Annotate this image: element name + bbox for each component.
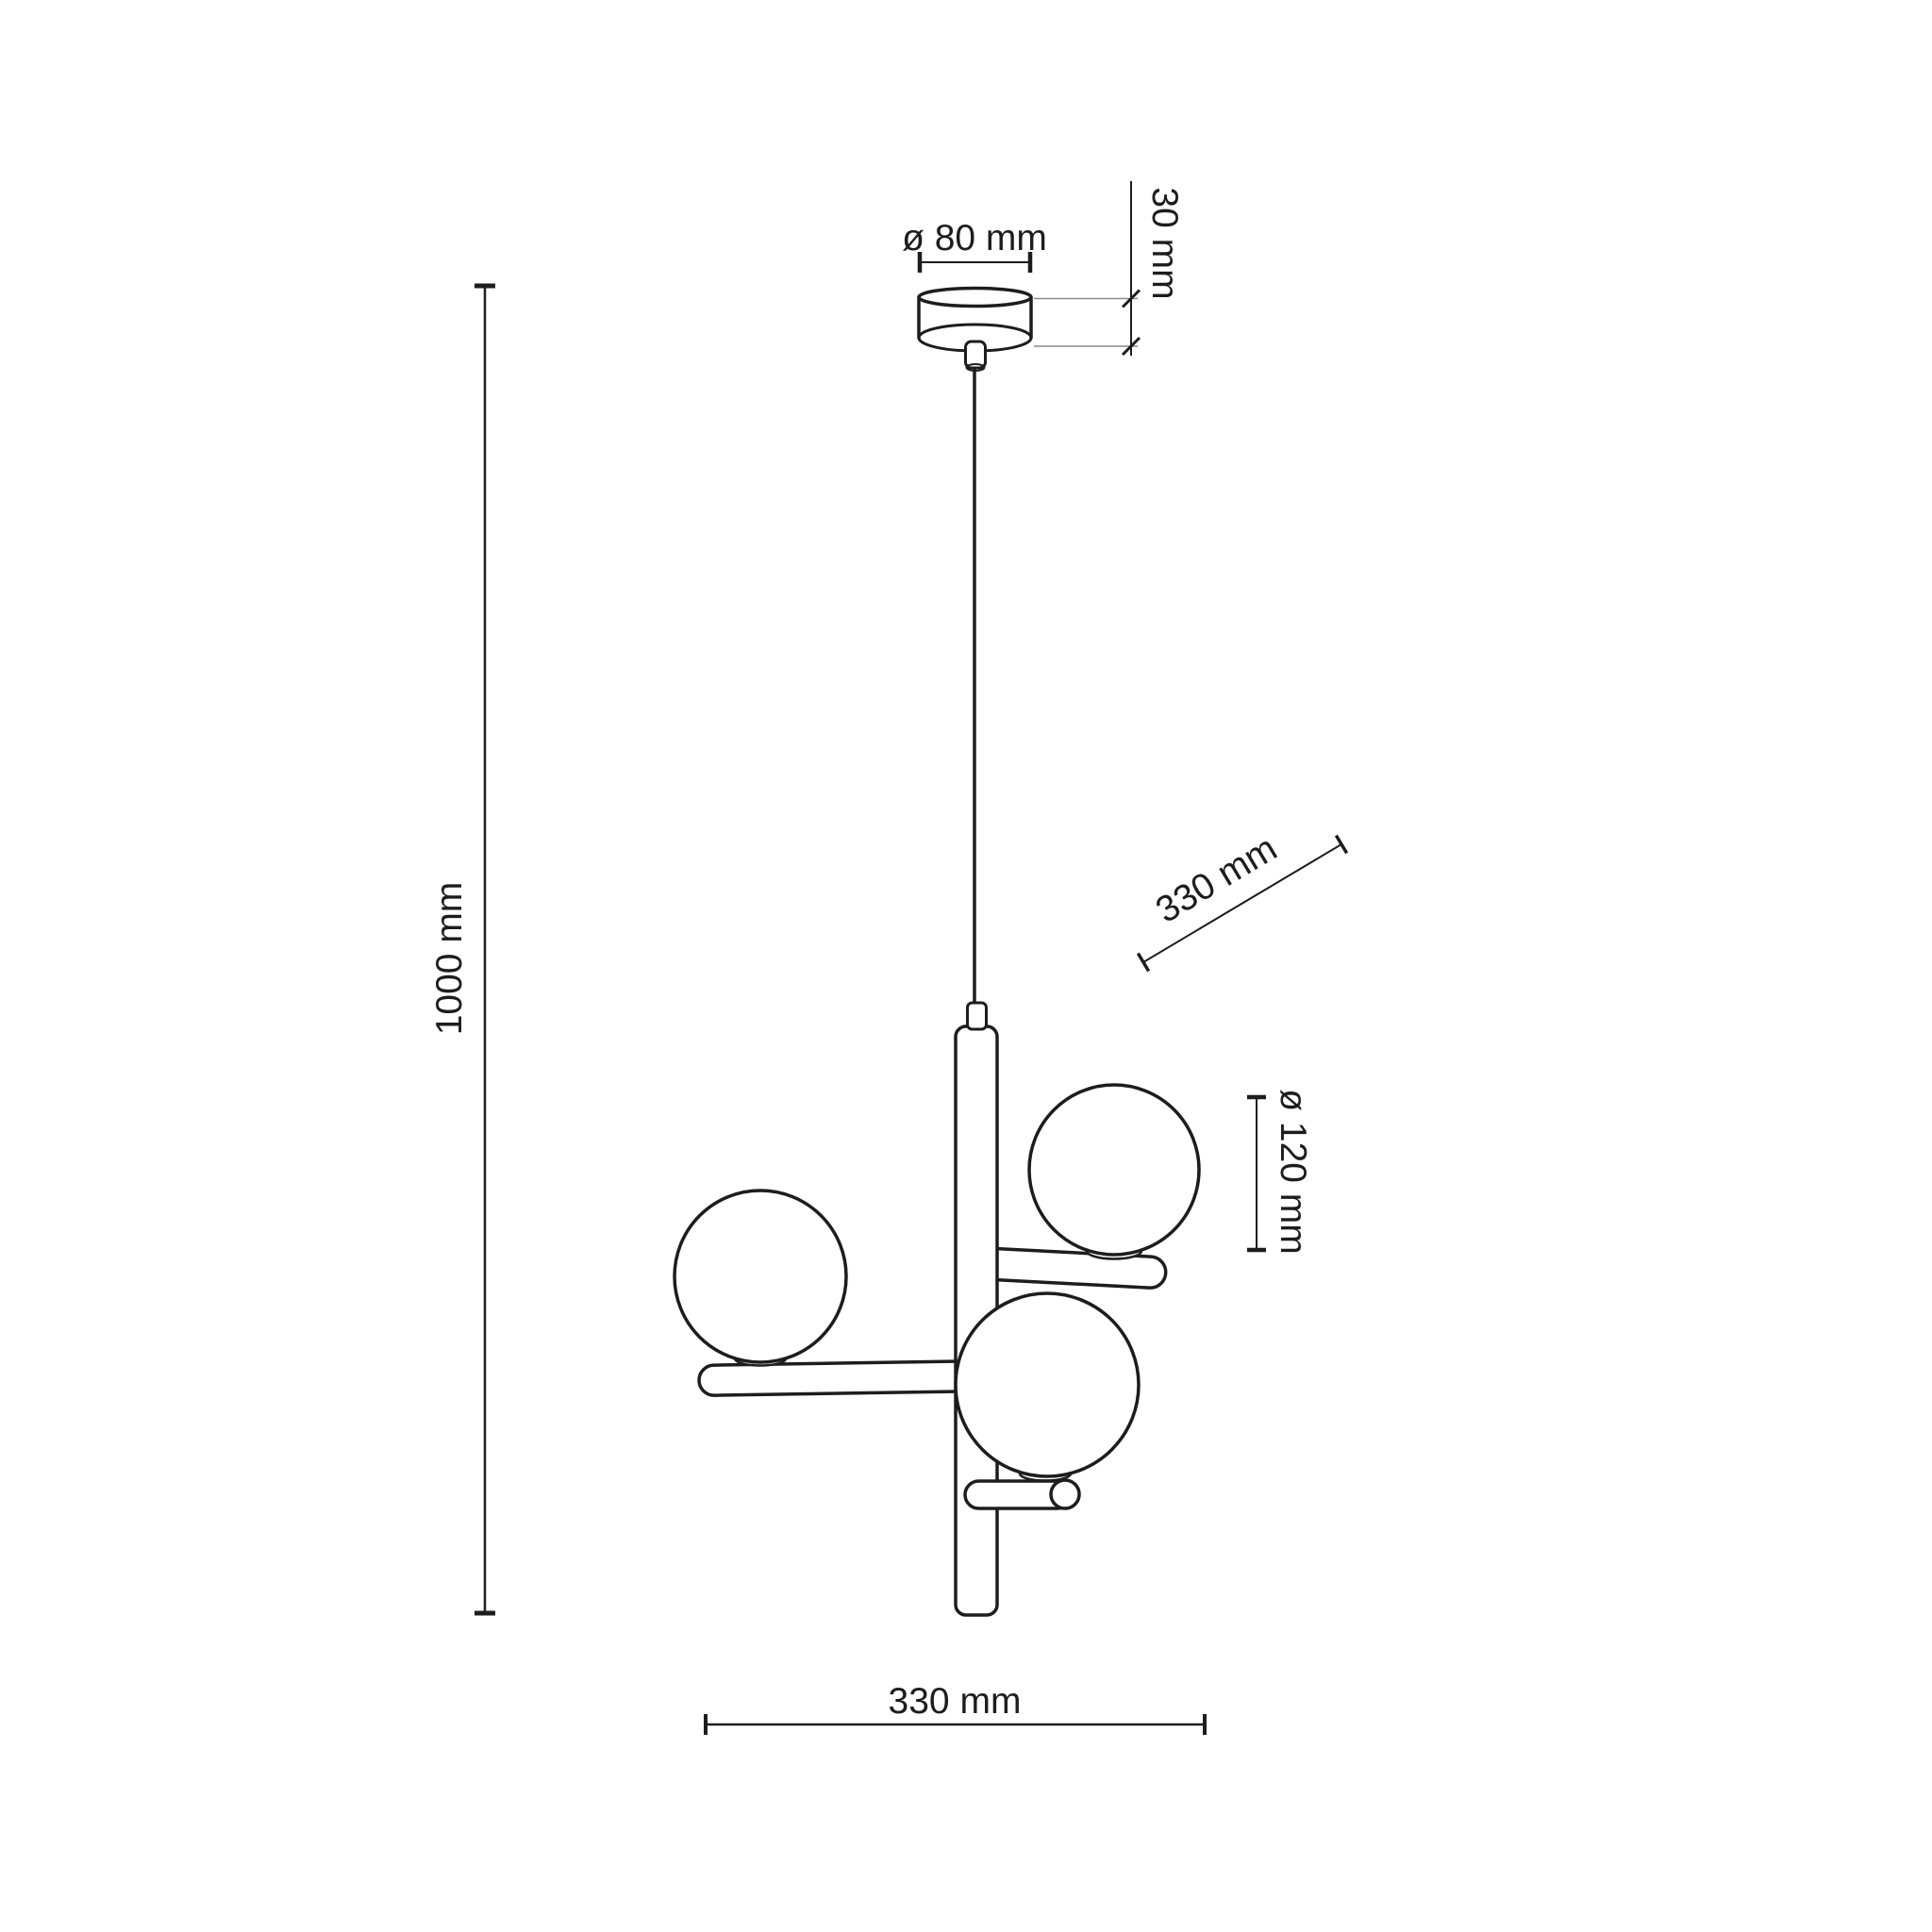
dim-tick [1138, 954, 1148, 972]
pendant-lamp-diagram: ø 80 mm 30 mm 330 mm ø 120 mm [0, 0, 1932, 1932]
dim-label-canopy-diameter: ø 80 mm [902, 218, 1047, 258]
dim-globe-diameter: ø 120 mm [1247, 1089, 1313, 1255]
dim-total-height: 1000 mm [429, 286, 495, 1613]
arm-left-rod [699, 1361, 987, 1396]
canopy-top-rim [919, 289, 1031, 307]
globe-bottom [956, 1293, 1139, 1476]
dim-label-total-height: 1000 mm [429, 882, 470, 1036]
dim-canopy-diameter: ø 80 mm [902, 218, 1047, 273]
dimensions: ø 80 mm 30 mm 330 mm ø 120 mm [429, 181, 1347, 1735]
dim-canopy-height: 30 mm [1034, 181, 1185, 356]
dim-total-width: 330 mm [706, 1681, 1205, 1735]
pendant-lamp [675, 289, 1199, 1616]
dim-label-globe-diameter: ø 120 mm [1273, 1089, 1313, 1255]
drawing-canvas: ø 80 mm 30 mm 330 mm ø 120 mm [0, 0, 1932, 1932]
globe-right [1029, 1085, 1199, 1255]
arm-lower-knob [1051, 1480, 1079, 1508]
tube-top-nipple [968, 1003, 987, 1029]
ceiling-canopy [919, 289, 1031, 372]
dim-tick [1336, 836, 1346, 854]
dim-rod-length: 330 mm [1138, 828, 1346, 972]
dim-label-total-width: 330 mm [889, 1681, 1022, 1722]
arm-left [699, 1361, 987, 1396]
dim-label-rod-length: 330 mm [1149, 828, 1284, 931]
globe-left [675, 1191, 846, 1362]
dim-label-canopy-height: 30 mm [1144, 187, 1185, 299]
